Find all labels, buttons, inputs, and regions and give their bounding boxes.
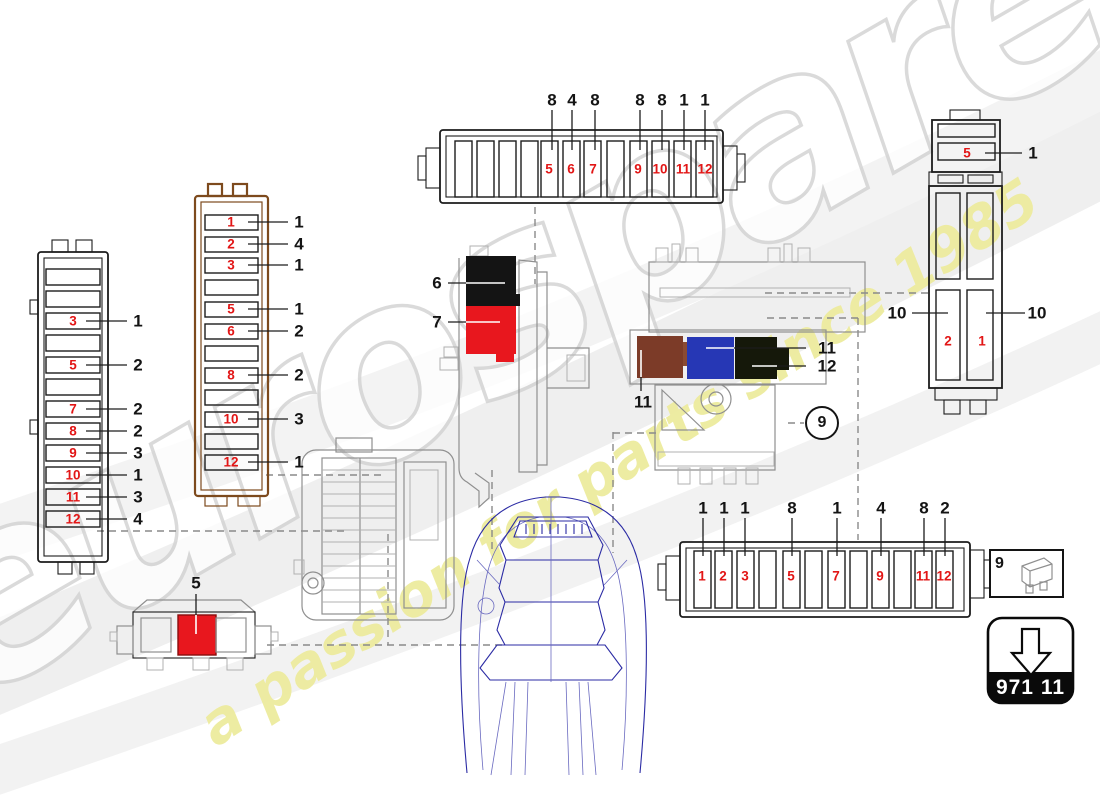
fuse-number: 10 — [652, 162, 667, 176]
callout-label: 3 — [133, 489, 142, 506]
fuse-number: 7 — [832, 569, 840, 583]
fuse-number: 9 — [634, 162, 642, 176]
callout-label: 4 — [294, 236, 303, 253]
fuse-number: 7 — [69, 402, 77, 416]
callout-label: 11 — [818, 340, 836, 357]
fuse-number: 12 — [223, 455, 238, 469]
callout-label: 2 — [294, 323, 303, 340]
fuse-number: 3 — [69, 314, 77, 328]
legend-ref-number: 9 — [995, 555, 1004, 573]
fuse-number: 5 — [69, 358, 77, 372]
fuse-number: 11 — [916, 569, 930, 583]
callout-label: 8 — [590, 92, 599, 109]
callout-label: 2 — [940, 500, 949, 517]
fuse-number: 5 — [545, 162, 553, 176]
callout-label: 1 — [133, 467, 142, 484]
callout-label: 2 — [133, 423, 142, 440]
fuse-number: 11 — [66, 490, 80, 504]
callout-label: 2 — [133, 357, 142, 374]
callout-label: 5 — [191, 575, 200, 592]
callout-label: 1 — [698, 500, 707, 517]
fuse-number: 1 — [978, 334, 986, 348]
callout-label: 12 — [818, 358, 837, 375]
fuse-number: 10 — [65, 468, 80, 482]
circled-callout: 9 — [805, 406, 839, 440]
fuse-number: 5 — [963, 146, 971, 160]
callout-label: 4 — [876, 500, 885, 517]
callout-label: 8 — [547, 92, 556, 109]
callout-label: 1 — [294, 257, 303, 274]
callout-label: 1 — [832, 500, 841, 517]
fuse-number: 5 — [787, 569, 795, 583]
fuse-number: 2 — [719, 569, 727, 583]
fuse-number: 12 — [697, 162, 712, 176]
callout-label: 2 — [294, 367, 303, 384]
callout-label: 2 — [133, 401, 142, 418]
callout-labels-layer: 5679101112848881152111010357891011121222… — [0, 0, 1100, 800]
callout-label: 1 — [719, 500, 728, 517]
callout-label: 1 — [294, 454, 303, 471]
fuse-number: 7 — [589, 162, 597, 176]
fuse-number: 11 — [676, 162, 690, 176]
callout-label: 10 — [888, 305, 907, 322]
fuse-number: 12 — [65, 512, 80, 526]
callout-label: 8 — [787, 500, 796, 517]
callout-label: 8 — [919, 500, 928, 517]
callout-label: 8 — [657, 92, 666, 109]
part-number-text: 971 11 — [988, 676, 1073, 700]
fuse-number: 8 — [227, 368, 235, 382]
fuse-number: 9 — [876, 569, 884, 583]
fuse-number: 3 — [227, 258, 235, 272]
callout-label: 3 — [294, 411, 303, 428]
fuse-number: 2 — [944, 334, 952, 348]
callout-label: 1 — [133, 313, 142, 330]
fuse-number: 1 — [698, 569, 706, 583]
fuse-number: 6 — [227, 324, 235, 338]
callout-label: 4 — [133, 511, 142, 528]
callout-label: 1 — [679, 92, 688, 109]
callout-label: 6 — [432, 275, 441, 292]
fuse-number: 9 — [69, 446, 77, 460]
callout-label: 11 — [634, 394, 652, 411]
callout-label: 1 — [700, 92, 709, 109]
fuse-number: 10 — [223, 412, 238, 426]
callout-label: 8 — [635, 92, 644, 109]
fuse-number: 5 — [227, 302, 235, 316]
fuse-number: 12 — [936, 569, 951, 583]
fuse-number: 1 — [227, 215, 235, 229]
callout-label: 1 — [294, 214, 303, 231]
callout-label: 10 — [1028, 305, 1047, 322]
callout-label: 1 — [294, 301, 303, 318]
callout-label: 7 — [432, 314, 441, 331]
fuse-number: 6 — [567, 162, 575, 176]
fuse-number: 2 — [227, 237, 235, 251]
callout-label: 4 — [567, 92, 576, 109]
fuse-number: 3 — [741, 569, 749, 583]
fuse-number: 8 — [69, 424, 77, 438]
parts-diagram-page: eurospares a passion for parts since 198… — [0, 0, 1100, 800]
callout-label: 1 — [1028, 145, 1037, 162]
callout-label: 1 — [740, 500, 749, 517]
callout-label: 3 — [133, 445, 142, 462]
